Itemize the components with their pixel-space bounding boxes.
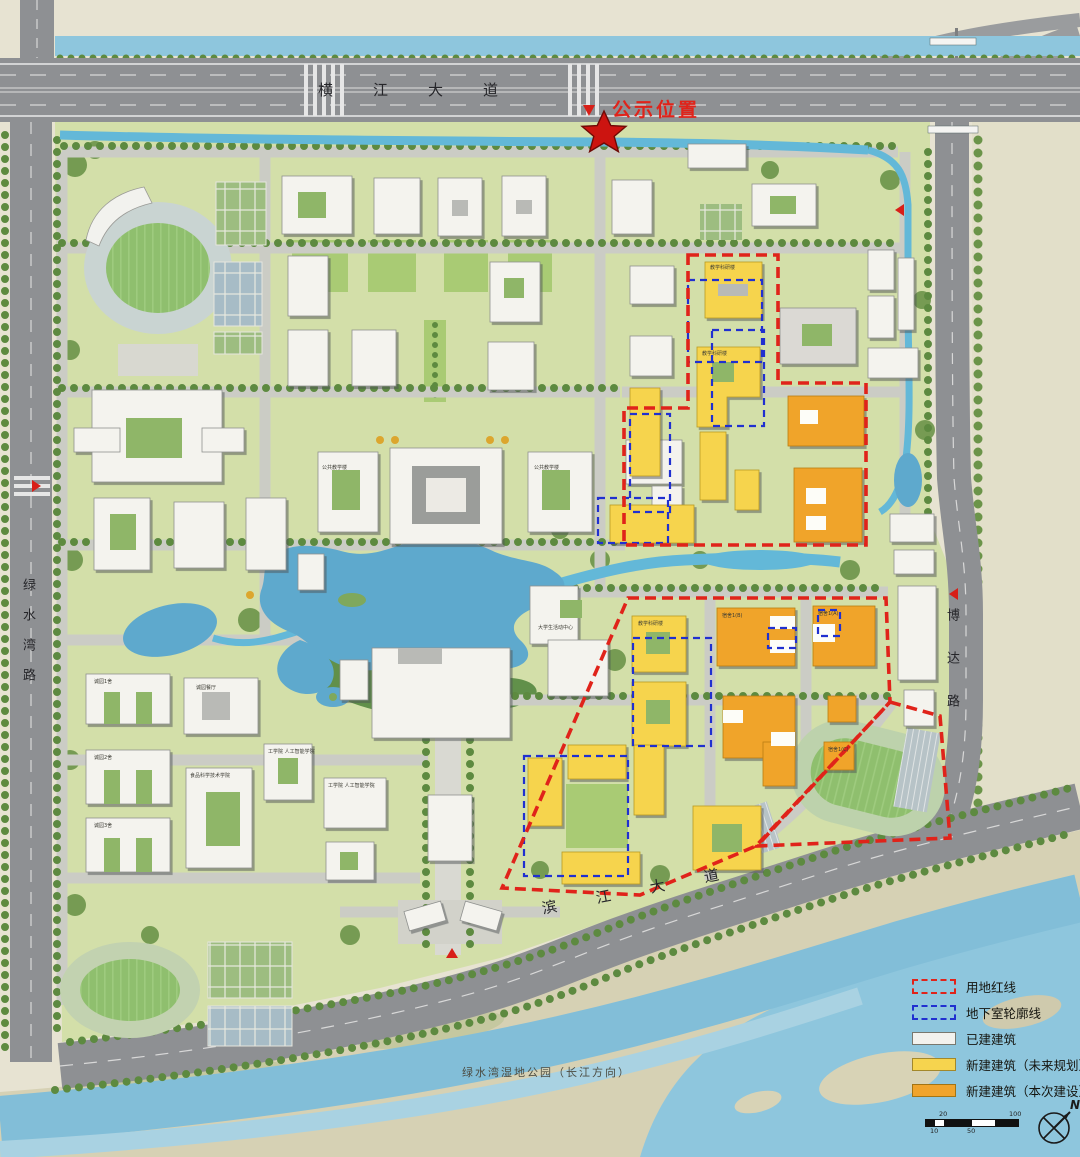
building-label-public-teaching-b: 公共教学楼 <box>534 466 559 472</box>
building-label-canteen: 诚园餐厅 <box>196 686 216 692</box>
notice-location-label: 公示位置 <box>612 95 700 122</box>
building-label-public-teaching-a: 公共教学楼 <box>322 466 347 472</box>
legend-item-red-line: 用地红线 <box>912 979 1080 994</box>
red-dash-swatch <box>912 979 956 994</box>
legend: 用地红线 地下室轮廓线 已建建筑 新建建筑（未来规划） 新建建筑（本次建设） <box>912 979 1080 1109</box>
future-swatch <box>912 1058 956 1071</box>
building-label-dorm-1c: 宿舍1(C) <box>828 748 849 754</box>
building-label-dorm-1a: 宿舍1(A) <box>818 612 839 618</box>
building-label-food-college: 食品科学技术学院 <box>190 774 230 780</box>
legend-item-basement-line: 地下室轮廓线 <box>912 1005 1080 1020</box>
north-canal-strip <box>55 36 1080 56</box>
legend-item-future: 新建建筑（未来规划） <box>912 1057 1080 1072</box>
building-label-dorm-cy1: 诚园1舍 <box>94 680 112 686</box>
building-label-eng-ai-a: 工学院 人工智能学院 <box>268 750 315 756</box>
scale-bar: 20 100 10 50 <box>925 1110 1029 1136</box>
building-label-dorm-1b: 宿舍1(B) <box>722 614 743 620</box>
scale-tick-10: 10 <box>930 1127 938 1135</box>
building-label-research-a: 教学科研楼 <box>710 266 735 272</box>
legend-item-existing: 已建建筑 <box>912 1031 1080 1046</box>
road-label-east: 博达路 <box>942 608 961 737</box>
legend-label: 地下室轮廓线 <box>966 1003 1041 1022</box>
blue-dash-swatch <box>912 1005 956 1020</box>
campus-master-plan: 公示位置 横江大道 绿水湾路 博达路 滨江大道 绿水湾湿地公园（长江方向） 公共… <box>0 0 1080 1157</box>
road-label-north: 横江大道 <box>318 79 538 100</box>
north-compass-icon: N <box>1028 1096 1080 1152</box>
building-label-student-center: 大学生活动中心 <box>538 626 573 632</box>
building-label-research-c: 教学科研楼 <box>638 622 663 628</box>
park-label: 绿水湾湿地公园（长江方向） <box>462 1064 631 1080</box>
current-swatch <box>912 1084 956 1097</box>
scale-tick-20: 20 <box>939 1110 947 1118</box>
legend-label: 新建建筑（未来规划） <box>966 1055 1080 1074</box>
scale-bar-bar <box>925 1119 1019 1127</box>
scale-tick-100: 100 <box>1009 1110 1021 1118</box>
building-label-dorm-cy2: 诚园2舍 <box>94 756 112 762</box>
legend-label: 已建建筑 <box>966 1029 1016 1048</box>
building-label-research-b: 教学科研楼 <box>702 352 727 358</box>
building-label-dorm-cy3: 诚园3舍 <box>94 824 112 830</box>
north-road <box>0 58 1080 122</box>
building-label-eng-ai-b: 工学院 人工智能学院 <box>328 784 375 790</box>
existing-swatch <box>912 1032 956 1045</box>
scale-tick-50: 50 <box>967 1127 975 1135</box>
road-label-west: 绿水湾路 <box>18 578 37 698</box>
compass-n-label: N <box>1070 1098 1080 1112</box>
construction-building <box>780 308 856 364</box>
legend-label: 用地红线 <box>966 977 1016 996</box>
